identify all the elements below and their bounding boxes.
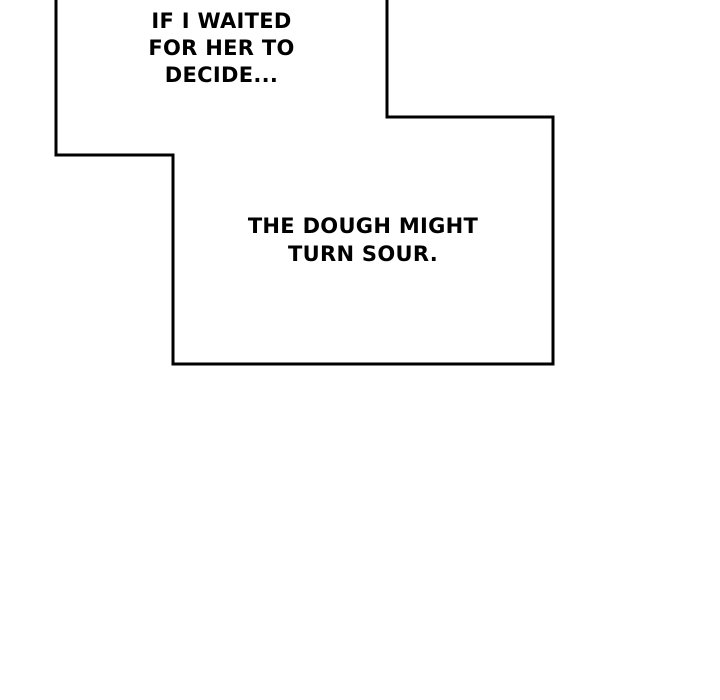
speech-line: DECIDE...: [56, 62, 387, 89]
speech-bubbles-outline: [0, 0, 720, 700]
speech-line: FOR HER TO: [56, 35, 387, 62]
speech-bubble-2-text: THE DOUGH MIGHT TURN SOUR.: [173, 212, 553, 268]
comic-panel: IF I WAITED FOR HER TO DECIDE... THE DOU…: [0, 0, 720, 700]
speech-bubble-1-text: IF I WAITED FOR HER TO DECIDE...: [56, 8, 387, 89]
speech-line: IF I WAITED: [56, 8, 387, 35]
speech-line: TURN SOUR.: [173, 240, 553, 268]
speech-line: THE DOUGH MIGHT: [173, 212, 553, 240]
